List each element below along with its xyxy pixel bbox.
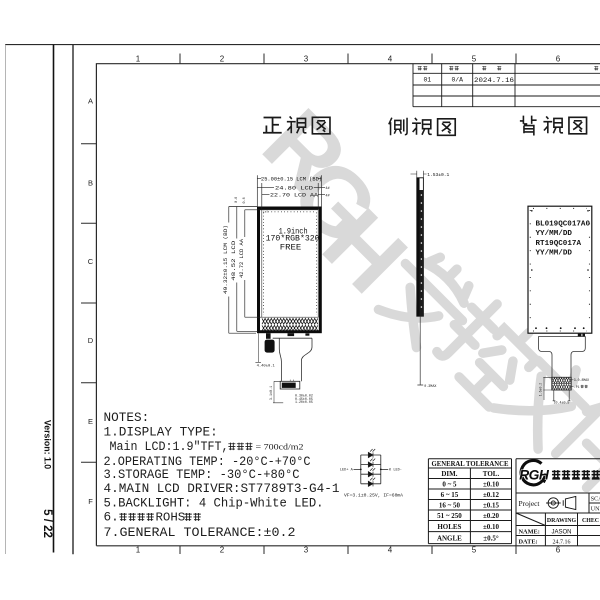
svg-text:RT19QC017A: RT19QC017A xyxy=(536,240,582,248)
svg-text:NOTES:: NOTES: xyxy=(104,410,150,425)
svg-text:BL019QC017A0: BL019QC017A0 xyxy=(536,221,591,229)
svg-text:±0.5°: ±0.5° xyxy=(483,535,499,543)
svg-text:0/A: 0/A xyxy=(451,77,463,84)
svg-text:B: B xyxy=(88,179,93,188)
svg-text:Project: Project xyxy=(519,499,541,508)
svg-text:1: 1 xyxy=(136,546,141,555)
svg-text:TOL.: TOL. xyxy=(483,470,500,478)
svg-text:±0.10: ±0.10 xyxy=(483,523,500,531)
svg-text:4.40±0.1: 4.40±0.1 xyxy=(257,365,276,369)
svg-text:42.72 LCD AA: 42.72 LCD AA xyxy=(239,238,245,278)
svg-text:6.: 6. xyxy=(104,510,119,525)
svg-text:±0.15: ±0.15 xyxy=(483,502,500,510)
svg-text:0.3MAX: 0.3MAX xyxy=(424,385,436,389)
svg-text:4: 4 xyxy=(388,546,393,555)
svg-text:GENERAL TOLERANCE: GENERAL TOLERANCE xyxy=(432,460,509,468)
svg-text:UNI: UNI xyxy=(591,507,600,513)
svg-text:1.6±0.2: 1.6±0.2 xyxy=(539,383,543,396)
svg-text:25.00±0.15 LCM (BD): 25.00±0.15 LCM (BD) xyxy=(261,177,322,183)
svg-text:5.BACKLIGHT: 4 Chip-White LED.: 5.BACKLIGHT: 4 Chip-White LED. xyxy=(104,495,324,510)
svg-text:±0.20: ±0.20 xyxy=(483,512,500,520)
svg-text:DIM.: DIM. xyxy=(441,470,457,478)
svg-text:5: 5 xyxy=(472,546,477,555)
svg-text:7.GENERAL TOLERANCE:±0.2: 7.GENERAL TOLERANCE:±0.2 xyxy=(104,525,296,540)
svg-text:±0.12: ±0.12 xyxy=(483,491,500,499)
svg-text:HOLES: HOLES xyxy=(437,523,461,531)
svg-text:DRAWING: DRAWING xyxy=(547,518,577,524)
svg-text:1.20±0.05: 1.20±0.05 xyxy=(295,400,313,404)
svg-text:ROHS: ROHS xyxy=(156,511,186,525)
svg-text:6: 6 xyxy=(556,55,561,64)
svg-text:3.STORAGE TEMP: -30°C-+80°C: 3.STORAGE TEMP: -30°C-+80°C xyxy=(104,467,300,482)
svg-text:22.70 LCD AA: 22.70 LCD AA xyxy=(270,193,319,199)
svg-text:Version: 1.0: Version: 1.0 xyxy=(43,420,53,469)
svg-text:1.9: 1.9 xyxy=(263,211,268,214)
svg-text:01: 01 xyxy=(423,77,431,84)
svg-text:D: D xyxy=(88,336,94,345)
svg-text:LED+ A: LED+ A xyxy=(340,469,354,473)
svg-text:5 / 22: 5 / 22 xyxy=(41,509,53,538)
svg-text:3: 3 xyxy=(304,55,309,64)
svg-text:A: A xyxy=(88,97,93,106)
svg-text:6 ~ 15: 6 ~ 15 xyxy=(441,491,459,499)
svg-text:24.80 LCD: 24.80 LCD xyxy=(275,185,313,191)
svg-text:NAME:: NAME: xyxy=(519,528,540,535)
svg-text:YY/MM/DD: YY/MM/DD xyxy=(536,230,573,238)
svg-text:24.7.16: 24.7.16 xyxy=(553,539,571,545)
svg-text:5: 5 xyxy=(472,55,477,64)
svg-text:C: C xyxy=(88,257,94,266)
svg-text:-P1: -P1 xyxy=(574,385,580,389)
svg-text:0 ~ 5: 0 ~ 5 xyxy=(442,481,457,489)
svg-text:F: F xyxy=(88,497,93,506)
svg-text:CHEC: CHEC xyxy=(582,518,599,524)
svg-text:0.8: 0.8 xyxy=(243,197,247,203)
svg-text:±0.10: ±0.10 xyxy=(483,481,500,489)
svg-text:16 ~ 50: 16 ~ 50 xyxy=(439,502,461,510)
svg-text:48.52 LCD: 48.52 LCD xyxy=(231,241,237,281)
svg-text:1: 1 xyxy=(136,55,141,64)
svg-text:K LED-: K LED- xyxy=(389,469,402,473)
svg-text:FREE: FREE xyxy=(280,243,302,252)
svg-text:YY/MM/DD: YY/MM/DD xyxy=(536,249,573,257)
svg-text:4: 4 xyxy=(388,55,393,64)
svg-text:170*RGB*320: 170*RGB*320 xyxy=(266,235,320,244)
svg-text:2024.7.16: 2024.7.16 xyxy=(474,77,514,84)
svg-text:6: 6 xyxy=(556,546,561,555)
svg-text:2: 2 xyxy=(220,546,225,555)
svg-text:3: 3 xyxy=(304,546,309,555)
svg-text:3-0.8MAX: 3-0.8MAX xyxy=(574,378,589,382)
svg-text:0.8: 0.8 xyxy=(235,197,239,203)
svg-text:3.1±0.1: 3.1±0.1 xyxy=(270,386,274,400)
svg-text:RGH: RGH xyxy=(519,467,550,482)
svg-text:51 ~ 250: 51 ~ 250 xyxy=(437,512,462,520)
svg-text:1.53±0.1: 1.53±0.1 xyxy=(427,172,449,178)
svg-text:49.32±0.15 LCM (BD): 49.32±0.15 LCM (BD) xyxy=(223,225,229,294)
svg-text:E: E xyxy=(88,417,93,426)
svg-text:4.MAIN LCD DRIVER:ST7789T3-G4-: 4.MAIN LCD DRIVER:ST7789T3-G4-1 xyxy=(104,481,340,496)
svg-text:SCA: SCA xyxy=(591,497,600,503)
svg-text:VF=3.1±0.25V, IF=60mA: VF=3.1±0.25V, IF=60mA xyxy=(344,494,403,499)
svg-text:2: 2 xyxy=(220,55,225,64)
svg-text:ANGLE: ANGLE xyxy=(437,535,462,543)
svg-text:Main LCD:1.9"TFT,: Main LCD:1.9"TFT, xyxy=(110,439,229,454)
svg-text:= 700cd/m2: = 700cd/m2 xyxy=(256,441,304,451)
svg-text:1.DISPLAY TYPE:: 1.DISPLAY TYPE: xyxy=(104,424,218,439)
svg-text:10.4±0.5: 10.4±0.5 xyxy=(554,401,570,405)
svg-text:JASON: JASON xyxy=(551,529,571,535)
svg-text:DATE:: DATE: xyxy=(519,538,538,545)
